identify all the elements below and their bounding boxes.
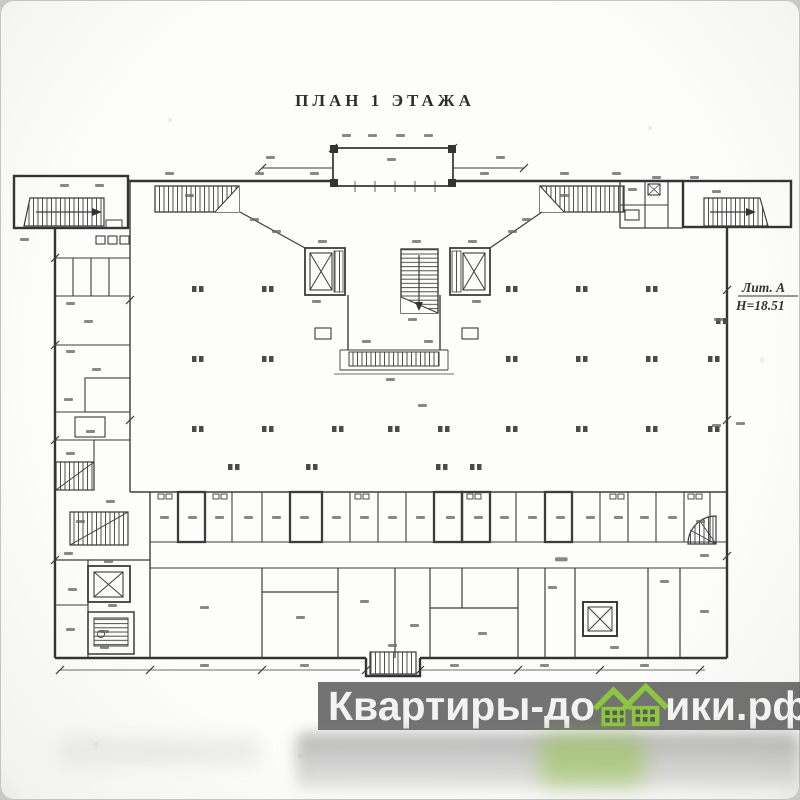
scan-noise: [94, 118, 765, 758]
height-label: Н=18.51: [735, 298, 785, 313]
watermark-blur-green-blob: [540, 735, 644, 785]
entrance-vestibule: [262, 145, 524, 192]
watermark-text-left: Квартиры-до: [328, 686, 595, 727]
staircase-top-left: [24, 198, 122, 228]
watermark-text-right: ики.рф: [665, 686, 800, 727]
photo-card: ПЛАН 1 ЭТАЖА: [0, 0, 800, 800]
retail-rooms-upper: [158, 492, 710, 542]
entrance-lobby-and-steps: [315, 295, 478, 374]
litera-label: Лит. А: [741, 280, 785, 295]
elevator-bottom-right: [583, 602, 617, 636]
column-grid: [192, 286, 728, 470]
entry-ramps: [155, 186, 624, 248]
tick-marks: [51, 144, 731, 674]
elevator-shaft-left: [305, 248, 345, 295]
bottom-left-smudge: [60, 738, 260, 764]
elevator-shaft-right: [450, 248, 490, 295]
houses-logo-icon: [592, 682, 668, 728]
staircase-bottom-center: [370, 652, 416, 674]
litera-annotation: Лит. А Н=18.51: [735, 280, 798, 313]
main-staircase: [401, 249, 438, 313]
left-wing-rooms: [55, 236, 150, 658]
machine-room: [88, 612, 134, 654]
watermark-band: Квартиры-до ики.рф: [318, 682, 800, 730]
elevator-bottom-left: [88, 566, 130, 602]
floor-plan-drawing: ПЛАН 1 ЭТАЖА: [0, 0, 800, 800]
plan-title: ПЛАН 1 ЭТАЖА: [295, 91, 475, 110]
staircase-top-right: [704, 198, 768, 226]
sink-fixtures: [158, 494, 702, 499]
